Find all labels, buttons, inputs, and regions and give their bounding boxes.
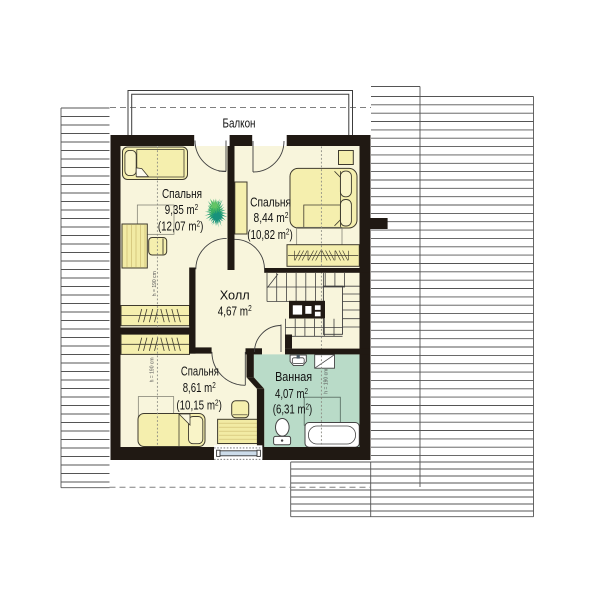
svg-text:Ванная: Ванная [275,369,312,384]
svg-text:Холл: Холл [220,288,250,303]
svg-text:4,67 m2: 4,67 m2 [218,303,252,318]
svg-text:h = 190 cm: h = 190 cm [323,368,329,393]
svg-text:Спальня: Спальня [162,186,202,201]
svg-text:4,07 m2: 4,07 m2 [275,386,308,401]
svg-text:Спальня: Спальня [181,363,219,378]
svg-text:8,61 m2: 8,61 m2 [183,380,216,395]
svg-text:Балкон: Балкон [223,116,256,131]
svg-text:9,35 m2: 9,35 m2 [165,202,199,217]
svg-text:8,44 m2: 8,44 m2 [254,210,289,225]
svg-text:Спальня: Спальня [250,194,291,209]
svg-text:h = 190 cm: h = 190 cm [152,271,158,296]
svg-text:h = 190 cm: h = 190 cm [150,357,156,382]
